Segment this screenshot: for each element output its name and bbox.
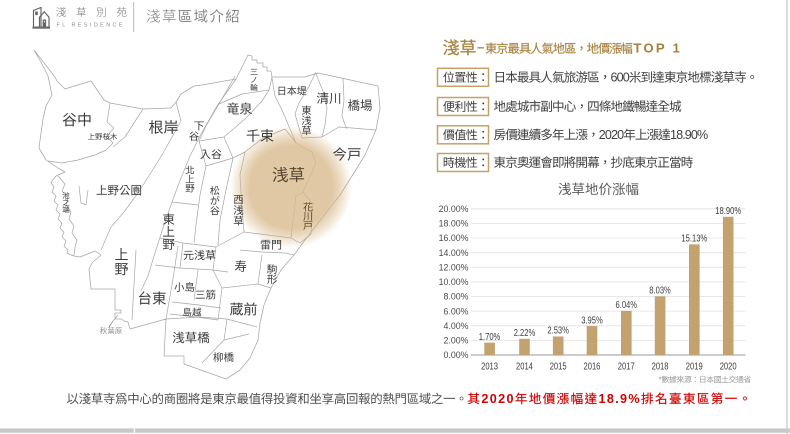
svg-text:–: –	[477, 40, 484, 55]
svg-text:8.00%: 8.00%	[444, 292, 469, 302]
svg-text:2.22%: 2.22%	[514, 328, 536, 339]
svg-text:8.03%: 8.03%	[649, 286, 671, 297]
svg-text:18.9%: 18.9%	[599, 392, 641, 406]
svg-text:6.00%: 6.00%	[444, 306, 469, 316]
svg-text:2018: 2018	[652, 361, 669, 372]
svg-text:2020: 2020	[481, 392, 514, 406]
svg-text:2019: 2019	[686, 361, 703, 372]
svg-text:2.53%: 2.53%	[547, 326, 569, 337]
svg-text:18.00%: 18.00%	[439, 219, 469, 229]
svg-text:2017: 2017	[618, 361, 635, 372]
svg-text:4.00%: 4.00%	[444, 321, 469, 331]
svg-text:2020: 2020	[599, 128, 624, 142]
svg-text:15.13%: 15.13%	[681, 234, 707, 245]
svg-text:2013: 2013	[481, 361, 498, 372]
svg-text:FL RESIDENCE: FL RESIDENCE	[57, 23, 125, 29]
svg-text:12.00%: 12.00%	[439, 263, 469, 273]
svg-text:18.90%: 18.90%	[670, 128, 708, 142]
svg-text:2.00%: 2.00%	[444, 336, 469, 346]
svg-text:0.00%: 0.00%	[444, 350, 469, 360]
svg-text:14.00%: 14.00%	[439, 248, 469, 258]
svg-text:3.95%: 3.95%	[581, 315, 603, 326]
svg-text:2014: 2014	[516, 361, 533, 372]
svg-text:20.00%: 20.00%	[439, 204, 469, 214]
svg-text:600: 600	[611, 71, 630, 85]
svg-text:TOP 1: TOP 1	[633, 40, 682, 55]
svg-text:1.70%: 1.70%	[479, 332, 501, 343]
svg-text:6.04%: 6.04%	[616, 300, 638, 311]
svg-text:18.90%: 18.90%	[715, 206, 741, 217]
svg-text:10.00%: 10.00%	[439, 277, 469, 287]
svg-text:16.00%: 16.00%	[439, 233, 469, 243]
svg-text:2020: 2020	[720, 361, 737, 372]
svg-text:2015: 2015	[550, 361, 567, 372]
svg-text:2016: 2016	[584, 361, 601, 372]
